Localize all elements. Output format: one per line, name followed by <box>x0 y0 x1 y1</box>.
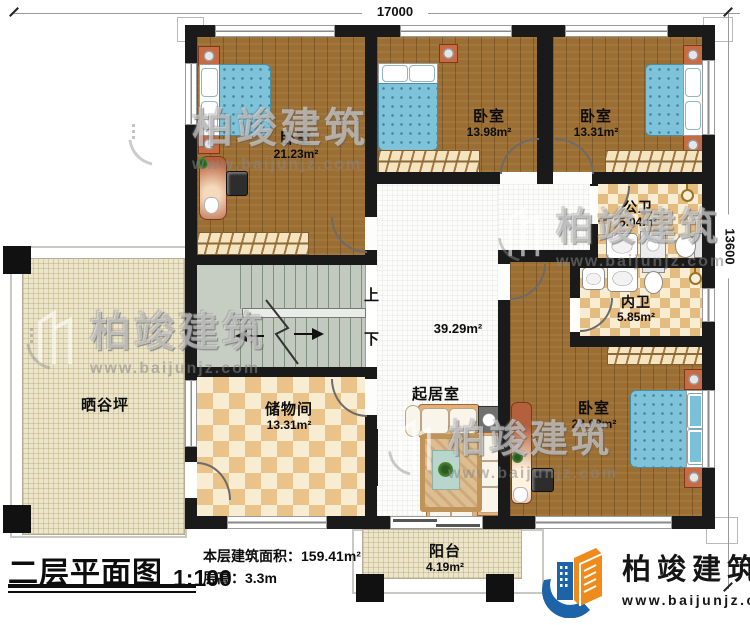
bed-mattress <box>219 64 271 136</box>
brand-logo: 柏竣建筑 www.baijunjz.com <box>536 546 750 618</box>
desk-lamp <box>204 197 219 214</box>
side-table <box>478 406 500 434</box>
wall-interior <box>590 258 715 268</box>
window <box>215 25 335 37</box>
window <box>535 516 672 529</box>
brand-website: www.baijunjz.com <box>622 592 750 608</box>
sink <box>582 267 605 290</box>
room-label-bedroom-tr: 卧室 13.31m² <box>556 109 636 139</box>
plant <box>197 158 208 169</box>
floor-area-line: 本层建筑面积：159.41m² <box>203 547 361 566</box>
window <box>702 288 715 322</box>
sofa-armrest <box>405 405 421 437</box>
room-name: 卧室 <box>449 109 529 126</box>
room-label-bedroom-tm: 卧室 13.98m² <box>449 109 529 139</box>
nightstand <box>684 467 704 488</box>
room-label-public-bath: 公卫 5.04m² <box>608 200 668 229</box>
pillow <box>688 394 703 428</box>
pillow <box>382 65 408 82</box>
wall-interior <box>570 336 715 347</box>
living-room-name-label: 起居室 <box>396 387 476 404</box>
door-opening <box>185 462 197 498</box>
title-underline <box>8 584 196 588</box>
room-name: 卧室 <box>256 131 336 148</box>
bed-mattress <box>630 390 688 468</box>
window <box>185 380 197 447</box>
pillow <box>201 101 218 130</box>
nightstand <box>198 46 220 66</box>
sink <box>606 233 638 259</box>
tv-screen <box>531 468 554 492</box>
nightstand <box>198 134 220 154</box>
room-area: 5.04m² <box>608 216 668 229</box>
window <box>702 60 715 135</box>
stairs-up-label: 上 <box>364 284 379 305</box>
floor-height-label: 层高： <box>203 570 245 586</box>
room-name: 晒谷坪 <box>66 398 144 415</box>
toilet <box>644 271 663 294</box>
room-label-bedroom-tl: 卧室 21.23m² <box>256 131 336 161</box>
room-area: 5.85m² <box>606 311 666 324</box>
pillow <box>685 101 701 130</box>
dimension-tick <box>9 7 19 17</box>
shower-head <box>681 189 694 202</box>
floor-height-line: 层高：3.3m <box>203 569 277 588</box>
wall-interior <box>197 255 377 265</box>
room-name: 内卫 <box>606 295 666 311</box>
wardrobe <box>197 232 309 255</box>
room-name: 卧室 <box>556 109 636 126</box>
dimension-width-label: 17000 <box>362 4 428 22</box>
pillow <box>409 65 435 82</box>
room-label-bedroom-br: 卧室 23.08m² <box>554 401 634 431</box>
wardrobe <box>605 150 704 173</box>
terrace-column <box>3 505 31 533</box>
plant <box>512 452 523 463</box>
room-label-storage: 储物间 13.31m² <box>244 402 334 432</box>
window <box>227 516 327 529</box>
room-area: 4.19m² <box>405 561 485 574</box>
wall-interior <box>197 367 377 377</box>
brand-logo-icon <box>536 546 616 618</box>
sofa-cushion <box>421 408 449 434</box>
room-name: 储物间 <box>244 402 334 419</box>
computer-monitor <box>226 171 248 196</box>
pillow <box>685 68 701 97</box>
room-label-balcony: 阳台 4.19m² <box>405 544 485 574</box>
sliding-door <box>390 516 483 529</box>
dimension-height-label: 13600 <box>721 215 738 279</box>
room-area: 13.31m² <box>556 126 636 139</box>
room-area: 23.08m² <box>554 418 634 431</box>
sliding-door-panel <box>393 519 437 522</box>
balcony-column <box>356 574 384 602</box>
floor-area-value: 159.41m² <box>301 548 361 564</box>
door-opening <box>590 186 598 224</box>
window <box>702 390 715 468</box>
window <box>565 25 668 37</box>
plant <box>438 462 453 477</box>
room-name: 起居室 <box>396 387 476 404</box>
toilet <box>675 234 696 258</box>
nightstand <box>439 44 458 63</box>
floor-area-label: 本层建筑面积： <box>203 548 301 564</box>
nightstand <box>683 45 703 65</box>
title-underline <box>8 591 196 593</box>
floor-plan-canvas: 17000 13600 <box>0 0 750 625</box>
door-opening <box>570 298 580 332</box>
nightstand <box>684 369 704 390</box>
window <box>400 25 512 37</box>
pillow <box>688 430 703 464</box>
pillow <box>201 68 218 97</box>
terrace-column <box>3 246 31 274</box>
room-label-private-bath: 内卫 5.85m² <box>606 295 666 324</box>
lamp <box>513 487 528 503</box>
door-opening <box>498 264 510 300</box>
dimension-line-right <box>728 13 729 589</box>
wall-interior <box>592 172 712 184</box>
room-area: 13.31m² <box>244 419 334 432</box>
shower-tray <box>640 231 666 259</box>
floor-height-value: 3.3m <box>245 570 277 586</box>
sliding-door-panel <box>436 524 480 527</box>
living-room-area-label: 39.29m² <box>418 322 498 337</box>
brand-company: 柏竣建筑 <box>622 546 750 588</box>
room-label-terrace: 晒谷坪 <box>66 398 144 415</box>
stairs-down-label: 下 <box>364 328 379 349</box>
room-area: 39.29m² <box>418 322 498 337</box>
room-name: 公卫 <box>608 200 668 216</box>
watermark-logo-icon <box>124 94 186 170</box>
room-name: 阳台 <box>405 544 485 561</box>
balcony-column <box>486 574 514 602</box>
brand-logo-text: 柏竣建筑 www.baijunjz.com <box>622 546 750 608</box>
sofa-cushion <box>449 408 477 434</box>
bed-mattress <box>378 83 438 151</box>
wardrobe <box>378 150 480 173</box>
stairs-break-symbol <box>232 296 336 368</box>
window <box>185 63 197 125</box>
wall-interior <box>537 37 553 184</box>
room-name: 卧室 <box>554 401 634 418</box>
room-area: 13.98m² <box>449 126 529 139</box>
living-room-corridor-floor <box>498 184 598 250</box>
bed-mattress <box>645 64 685 136</box>
sink <box>607 264 638 292</box>
shower-head <box>689 272 702 285</box>
wall-interior <box>377 172 500 184</box>
room-area: 21.23m² <box>256 148 336 161</box>
